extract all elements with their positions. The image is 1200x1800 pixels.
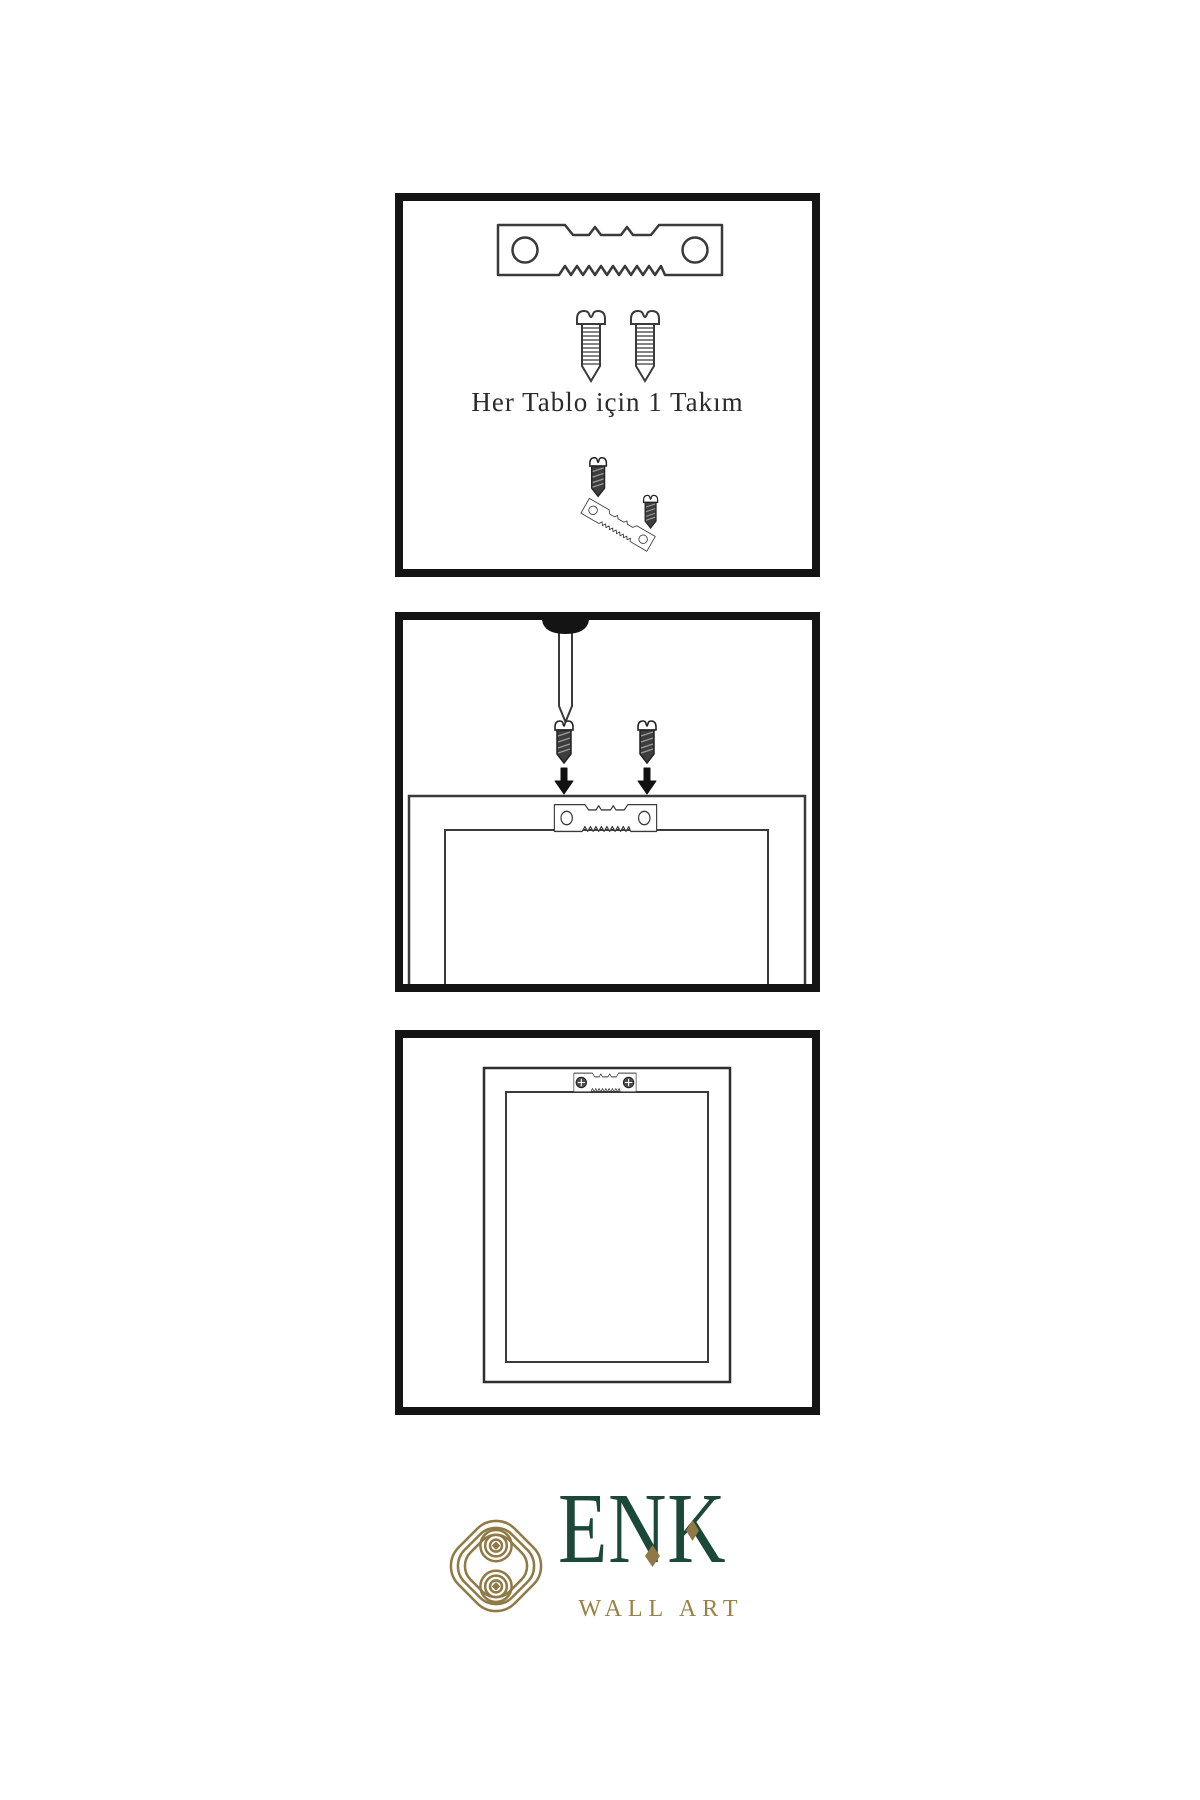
screw-icon <box>555 721 573 763</box>
step2-panel <box>395 612 820 992</box>
screw-icon <box>627 307 663 385</box>
screw-icon <box>638 721 656 763</box>
step3-panel <box>395 1030 820 1415</box>
kit-caption: Her Tablo için 1 Takım <box>403 387 812 418</box>
hung-frame-icon <box>484 1068 730 1382</box>
screw-icon <box>573 307 609 385</box>
step1-panel: Her Tablo için 1 Takım <box>395 193 820 577</box>
arrow-down-icon <box>555 768 573 794</box>
step3-diagram <box>403 1038 812 1407</box>
hanging-instruction-sheet: Her Tablo için 1 Takım <box>0 0 1200 1800</box>
brand-tagline: WALL ART <box>570 1596 752 1623</box>
wall-nail-icon <box>542 620 589 722</box>
knot-monogram-icon <box>436 1500 556 1632</box>
arrow-down-icon <box>638 768 656 794</box>
brand-logo: ENK WALL ART <box>430 1490 770 1650</box>
brand-name: ENK <box>558 1478 726 1579</box>
screw-into-hanger-icon <box>578 453 708 557</box>
mounted-sawtooth-hanger-icon <box>574 1073 636 1092</box>
sawtooth-hanger-icon <box>495 222 725 278</box>
sawtooth-hanger-icon <box>554 805 656 832</box>
step2-diagram <box>403 620 812 984</box>
